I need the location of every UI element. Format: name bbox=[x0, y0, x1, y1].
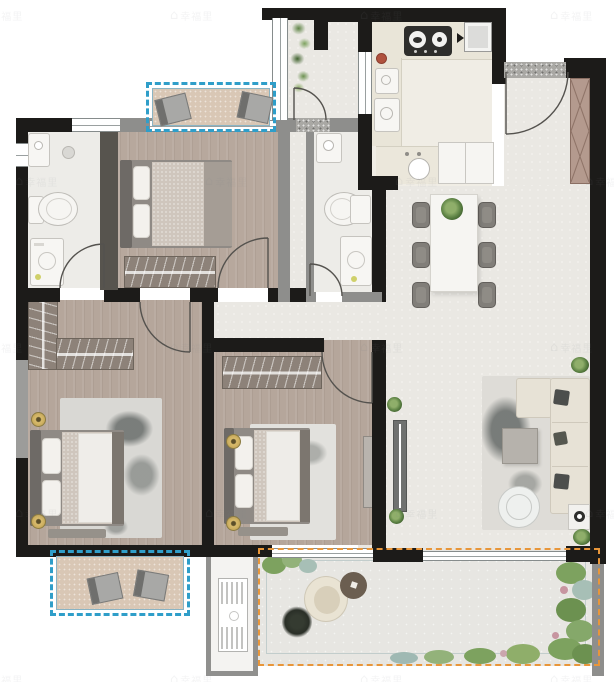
wall-left bbox=[16, 458, 28, 546]
sofa-pillow-dark bbox=[553, 473, 569, 489]
watermark: ⌂ 幸福里 bbox=[550, 672, 593, 682]
garden-shrub bbox=[464, 648, 496, 664]
master-bed-bench bbox=[48, 529, 106, 538]
master-wardrobe-vertical bbox=[28, 296, 58, 370]
tv-panel-line bbox=[399, 424, 401, 508]
master-wardrobe-horizontal bbox=[56, 338, 134, 370]
wall-terrace-right-gray bbox=[592, 564, 604, 676]
entry-threshold bbox=[504, 62, 566, 78]
house-icon: ⌂ bbox=[360, 673, 368, 682]
bed-2-pillow bbox=[235, 474, 253, 508]
dining-chair bbox=[478, 282, 496, 308]
watermark: ⌂ 幸福里 bbox=[550, 8, 593, 23]
plant-icon bbox=[571, 357, 589, 373]
shrub bbox=[299, 559, 317, 573]
refrigerator-handle-icon bbox=[457, 33, 464, 43]
ac-unit-icon bbox=[133, 569, 169, 601]
dining-chair bbox=[478, 242, 496, 268]
bed-top-pillow bbox=[133, 166, 150, 200]
cooktop-knob bbox=[414, 50, 417, 53]
garden-shrub bbox=[390, 652, 418, 664]
wall-segment bbox=[202, 302, 214, 545]
bath2-sink-basin bbox=[323, 140, 334, 151]
master-bed-headboard bbox=[30, 430, 41, 526]
wall-segment bbox=[372, 186, 386, 302]
watermark: ⌂ 幸福里 bbox=[170, 8, 213, 23]
window bbox=[423, 551, 566, 561]
garden-flower bbox=[552, 632, 559, 639]
bedside-lamp-icon bbox=[31, 412, 46, 427]
bath1-sink bbox=[28, 133, 50, 167]
wall-segment bbox=[566, 546, 594, 562]
bed-2-throw bbox=[300, 430, 310, 522]
wall-segment bbox=[373, 548, 423, 562]
watermark: ⌂ 幸福里 bbox=[0, 672, 23, 682]
wall-window-band bbox=[16, 360, 28, 458]
bedside-lamp-icon bbox=[226, 516, 241, 531]
kitchen-cabinet-divider bbox=[465, 142, 466, 184]
garden-shrub bbox=[556, 598, 586, 622]
bed-2-bench bbox=[238, 527, 288, 536]
kitchen-faucet-dot bbox=[405, 152, 409, 156]
master-bed-pillow bbox=[42, 480, 61, 516]
dining-chair bbox=[478, 202, 496, 228]
wall-partition bbox=[100, 132, 118, 290]
bath1-floor-drain bbox=[62, 146, 75, 159]
sofa-chaise bbox=[516, 378, 552, 418]
bath1-washer-dot bbox=[35, 274, 41, 280]
garden-shrub bbox=[506, 644, 540, 664]
bath2-toilet-tank bbox=[350, 195, 371, 224]
sofa-pillow-dark bbox=[553, 389, 570, 406]
bed-top-pillow bbox=[133, 204, 150, 238]
bed-top-headboard bbox=[120, 160, 132, 248]
window bbox=[72, 118, 120, 132]
house-icon: ⌂ bbox=[550, 673, 558, 682]
ac-grill bbox=[221, 582, 245, 604]
dining-chair bbox=[412, 282, 430, 308]
cooktop-burner-left-cap bbox=[413, 37, 422, 43]
ac-fan-dot bbox=[229, 611, 239, 621]
wall-segment bbox=[16, 118, 72, 132]
house-icon: ⌂ bbox=[170, 9, 178, 22]
dining-chair bbox=[412, 242, 430, 268]
bath2-washer-dot bbox=[351, 276, 357, 282]
threshold bbox=[296, 118, 330, 132]
wall-segment-gray bbox=[306, 132, 314, 292]
wall-segment bbox=[314, 8, 328, 50]
refrigerator-inner bbox=[468, 26, 488, 48]
hallway-floor bbox=[214, 302, 382, 340]
sofa-cushion-line bbox=[552, 466, 588, 467]
dark-plant bbox=[282, 606, 312, 638]
bed-top-throw bbox=[204, 162, 232, 246]
wall-segment-gray bbox=[278, 132, 290, 302]
cooktop-knob bbox=[424, 50, 427, 53]
balcony-planter-greenery bbox=[289, 17, 313, 93]
side-table-knob bbox=[574, 511, 585, 522]
bath1-washer-drum bbox=[38, 252, 56, 270]
wall-segment bbox=[214, 338, 324, 352]
master-bed-throw bbox=[112, 432, 124, 524]
wall-segment-gray bbox=[342, 292, 382, 302]
bedside-lamp-icon bbox=[31, 514, 46, 529]
wall-right bbox=[590, 58, 606, 564]
house-icon: ⌂ bbox=[550, 9, 558, 22]
wall-segment bbox=[328, 8, 506, 22]
bed-2-duvet bbox=[266, 431, 300, 521]
garden-flower bbox=[500, 650, 507, 657]
bath1-washer-panel bbox=[34, 243, 44, 246]
bedside-lamp-icon bbox=[226, 434, 241, 449]
window-small bbox=[16, 143, 28, 167]
cooktop-knob bbox=[434, 50, 437, 53]
master-bed-pillow bbox=[42, 438, 61, 474]
sofa-cushion-line bbox=[552, 422, 588, 423]
wall-segment bbox=[372, 340, 386, 548]
ac-platform-bottom bbox=[50, 550, 190, 616]
coffee-table bbox=[502, 428, 538, 464]
kitchen-faucet-dot bbox=[417, 152, 421, 156]
terrace-egg-chair-cushion bbox=[314, 586, 340, 614]
sofa-pillow-dark bbox=[553, 431, 568, 446]
kitchen-cabinet-block bbox=[438, 142, 494, 184]
garden-flower bbox=[560, 586, 568, 594]
floor-plan-canvas: ⌂ 幸福里 ⌂ 幸福里 ⌂ 幸福里 ⌂ 幸福里 ⌂ 幸福里 ⌂ 幸福里 ⌂ 幸福… bbox=[0, 0, 614, 682]
bedroom-top-wardrobe bbox=[124, 256, 216, 288]
bath2-washer-drum bbox=[347, 251, 365, 269]
wall-segment bbox=[16, 288, 60, 302]
kitchen-kettle bbox=[376, 53, 387, 64]
wall-segment bbox=[190, 288, 218, 302]
plant-icon bbox=[389, 509, 404, 524]
wall-segment-gray bbox=[306, 292, 316, 302]
plant-icon bbox=[387, 397, 402, 412]
kitchen-round-sink bbox=[408, 158, 430, 180]
cooktop-burner-right-cap bbox=[437, 37, 442, 42]
corridor-floor bbox=[290, 132, 306, 302]
outdoor-ac-unit bbox=[218, 578, 248, 652]
plant-icon bbox=[573, 529, 591, 545]
window bbox=[272, 548, 373, 558]
wall-segment bbox=[358, 14, 372, 54]
bedroom-2-wardrobe bbox=[222, 356, 322, 389]
garden-shrub bbox=[424, 650, 454, 664]
kitchen-sink-2-basin bbox=[380, 107, 393, 120]
dining-chair bbox=[412, 202, 430, 228]
bath1-sink-basin bbox=[34, 141, 43, 150]
ac-grill bbox=[221, 627, 245, 649]
wall-segment bbox=[104, 288, 140, 302]
watermark: ⌂ 幸福里 bbox=[360, 672, 403, 682]
watermark: ⌂ 幸福里 bbox=[0, 8, 23, 23]
kitchen-sink-1-basin bbox=[381, 75, 391, 85]
dining-table-plant-icon bbox=[441, 198, 463, 220]
bath1-toilet-inner bbox=[46, 198, 72, 220]
house-icon: ⌂ bbox=[170, 673, 178, 682]
ac-platform-top bbox=[146, 82, 276, 132]
round-lounge-chair-inner bbox=[506, 494, 532, 520]
window bbox=[358, 52, 372, 114]
shoe-cabinet bbox=[570, 78, 590, 184]
